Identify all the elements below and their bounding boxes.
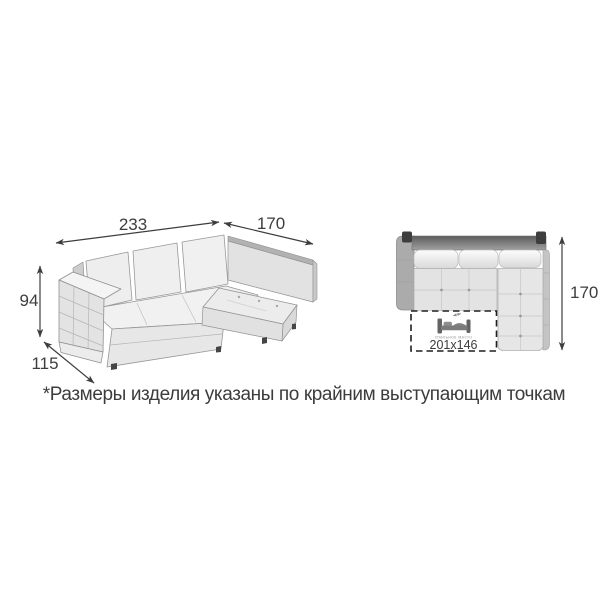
dimension-width: 233 (56, 215, 219, 243)
tuft-button (258, 300, 260, 302)
top-corner-right (536, 232, 546, 245)
tuft-button (519, 315, 522, 318)
tuft-button (519, 335, 522, 338)
bed-pillow (444, 322, 453, 326)
dimensions-footnote: *Размеры изделия указаны по крайним выст… (0, 384, 608, 406)
top-back-cushion-1 (414, 250, 458, 269)
product-dimensions-diagram: 233 170 94 115 (0, 0, 608, 608)
sofa-perspective-drawing (59, 235, 317, 370)
top-corner-left (402, 232, 412, 243)
top-backrest-bar (412, 236, 546, 250)
sleeping-area: спальное место 201x146 (411, 311, 497, 352)
tuft-button (468, 289, 471, 292)
dimension-label-115: 115 (31, 354, 58, 373)
sofa-front-face (107, 322, 224, 367)
tuft-button (440, 289, 443, 292)
bed-mattress (441, 326, 468, 331)
top-back-cushion-3 (499, 250, 541, 268)
back-cushion-2 (133, 243, 181, 300)
diagram-canvas: 233 170 94 115 (0, 0, 608, 608)
back-cushion-3 (182, 235, 228, 292)
sleeping-area-size-label: 201x146 (430, 338, 478, 352)
top-back-cushion-2 (459, 250, 498, 269)
top-right-bolster (543, 250, 550, 350)
tuft-button (519, 293, 522, 296)
perspective-view: 233 170 94 115 (20, 214, 317, 383)
dimension-label-top-170: 170 (570, 283, 598, 302)
dimension-label-94: 94 (20, 291, 39, 310)
dimension-label-170: 170 (257, 214, 285, 233)
dimension-label-233: 233 (119, 215, 147, 234)
tuft-button (238, 296, 240, 298)
top-armrest (397, 236, 415, 310)
dimension-height: 94 (20, 266, 40, 337)
dimension-top-depth: 170 (562, 237, 598, 350)
chaise-back-panel-cap (313, 260, 317, 302)
top-view: спальное место 201x146 170 (397, 232, 599, 352)
tuft-button (276, 305, 278, 307)
